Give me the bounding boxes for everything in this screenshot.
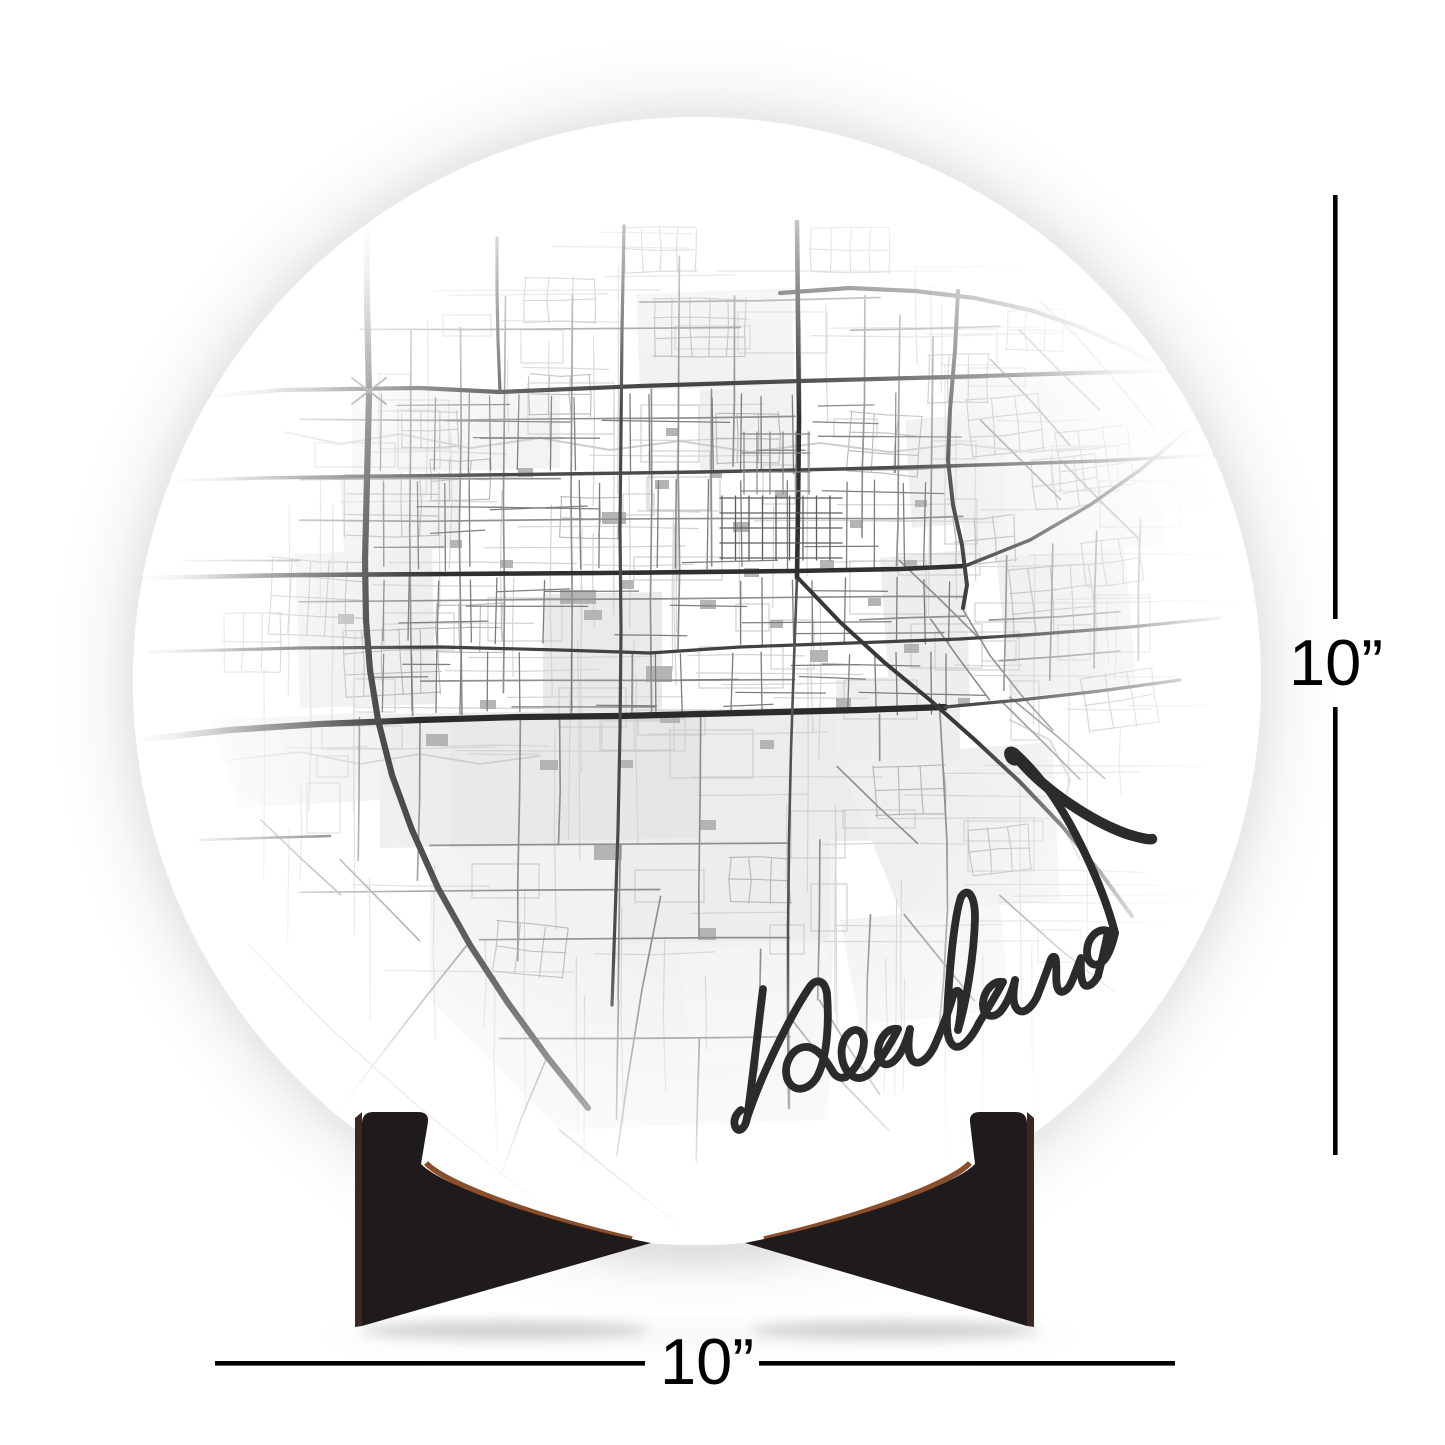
svg-text:10”: 10”: [1289, 626, 1383, 699]
svg-text:10”: 10”: [660, 1325, 754, 1398]
